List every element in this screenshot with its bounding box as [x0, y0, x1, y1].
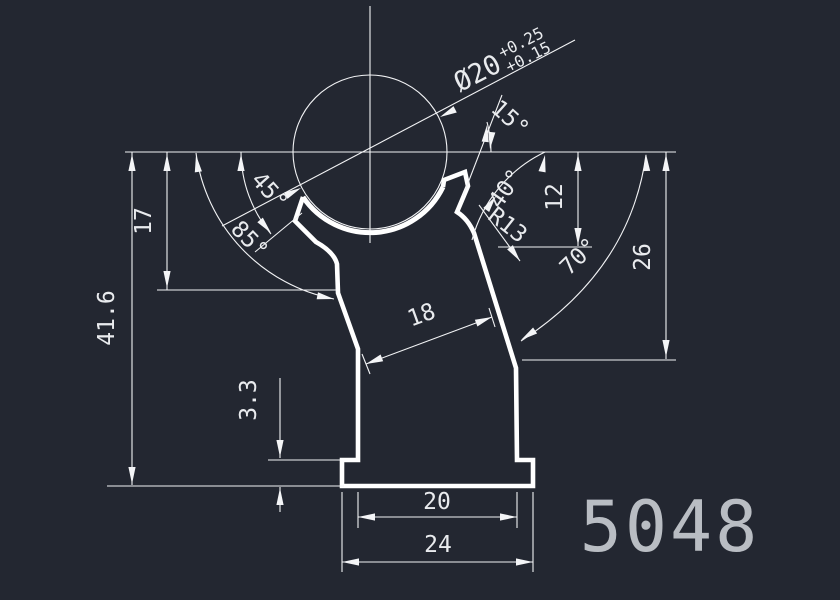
dim-height-total: 41.6	[94, 290, 120, 345]
dim-height-waist: 17	[131, 207, 157, 235]
cad-drawing-canvas: 41.6 17 3.3 12 26 18 20 24 45° 85° 15° 4…	[0, 0, 840, 600]
dim-neck-width: 18	[404, 298, 439, 332]
dim-flange-height: 3.3	[236, 379, 262, 421]
dim-depth-right-upper: 12	[542, 183, 568, 211]
centerlines	[125, 6, 676, 243]
dim-diameter-group: Ø20 +0.25 +0.15	[448, 23, 554, 100]
dim-angle-left-lip: 45°	[246, 167, 293, 215]
part-outline	[293, 75, 533, 486]
socket-arc	[303, 187, 443, 233]
part-number: 5048	[580, 486, 761, 568]
dim-flange-width: 24	[424, 532, 452, 558]
dim-depth-right: 26	[630, 243, 656, 271]
dim-body-width: 20	[423, 489, 451, 515]
